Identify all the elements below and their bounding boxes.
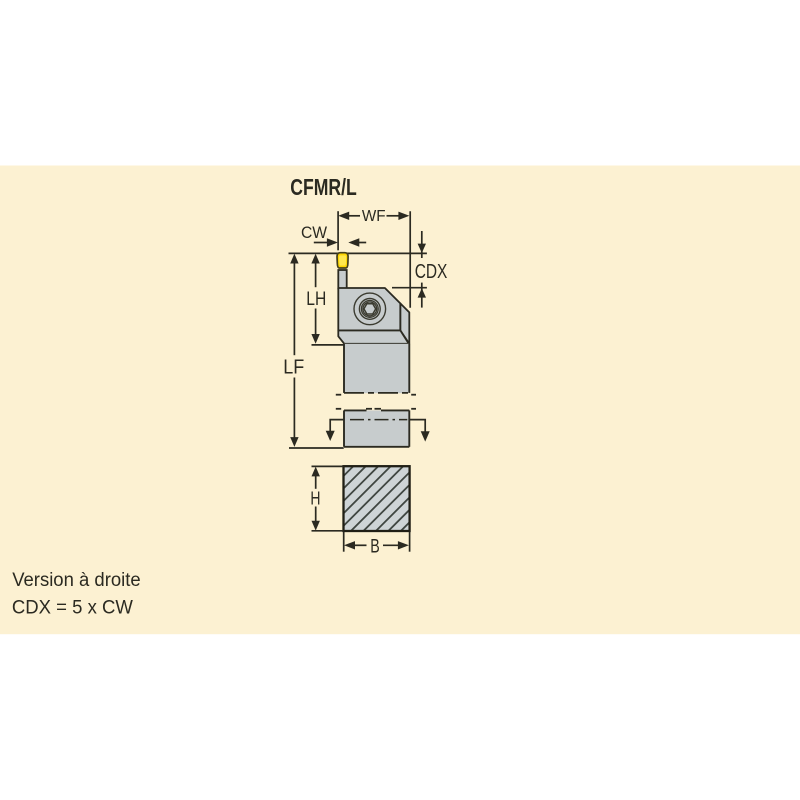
svg-text:B: B	[370, 536, 380, 557]
svg-text:WF: WF	[362, 208, 386, 225]
svg-text:CW: CW	[301, 223, 327, 242]
svg-text:CDX = 5 x CW: CDX = 5 x CW	[12, 597, 133, 618]
svg-text:LH: LH	[306, 289, 326, 310]
svg-text:CFMR/L: CFMR/L	[290, 174, 357, 200]
svg-text:Version à droite: Version à droite	[12, 570, 141, 591]
svg-text:LF: LF	[283, 356, 304, 379]
svg-text:H: H	[310, 488, 320, 508]
svg-text:CDX: CDX	[415, 261, 448, 283]
